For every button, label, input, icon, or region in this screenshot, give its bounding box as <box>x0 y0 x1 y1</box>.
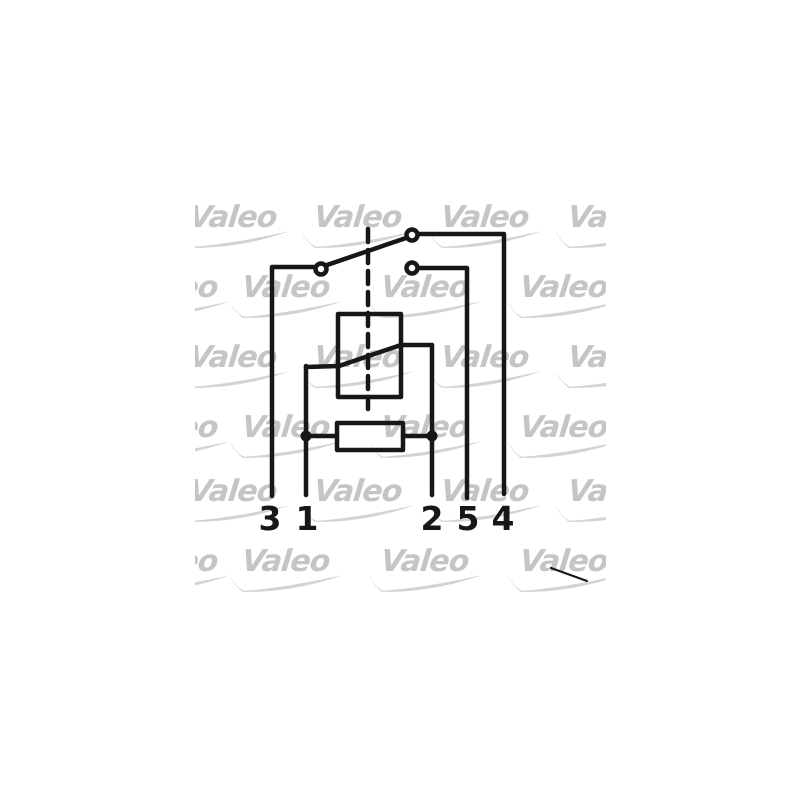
scan-scratch-artifact <box>551 568 587 581</box>
switch-lower-contact <box>407 263 418 274</box>
junction-dot-left <box>301 431 312 442</box>
relay-circuit-schematic: 3 1 2 5 4 <box>0 0 800 800</box>
junction-dot-right <box>427 431 438 442</box>
terminal-label-1: 1 <box>296 499 319 538</box>
terminal-5-wire <box>419 268 467 498</box>
resistor <box>337 423 403 450</box>
terminal-label-5: 5 <box>457 499 480 538</box>
terminal-label-3: 3 <box>259 499 282 538</box>
terminal-label-4: 4 <box>492 499 515 538</box>
terminal-label-2: 2 <box>421 499 444 538</box>
scanned-diagram-page: ValeoValeoValeoValeoValeoValeoValeoValeo… <box>0 0 800 800</box>
terminal-labels: 3 1 2 5 4 <box>259 499 515 538</box>
switch-upper-contact <box>407 230 418 241</box>
